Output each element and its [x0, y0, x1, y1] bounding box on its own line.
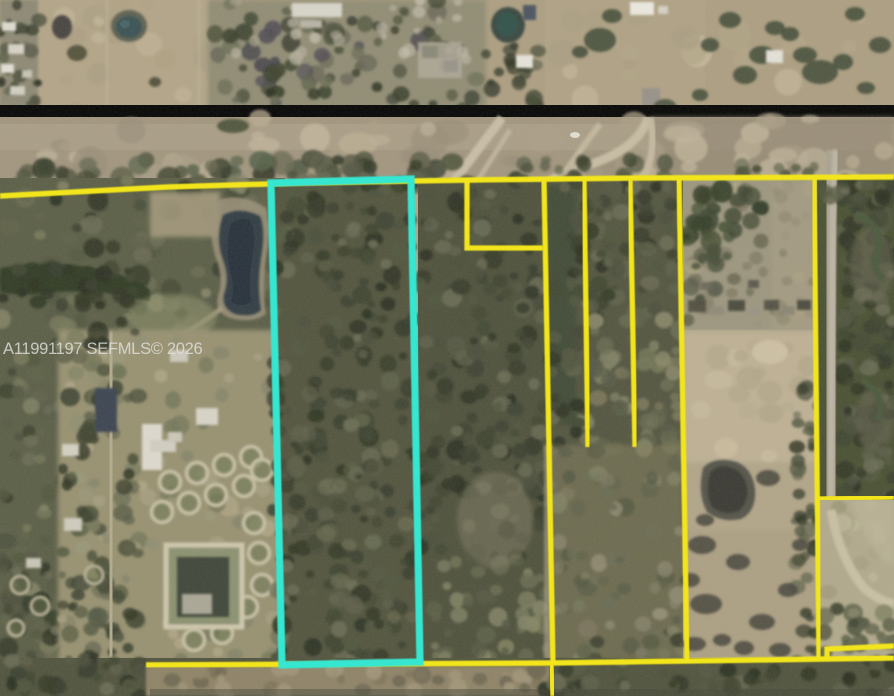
- svg-text:A11991197 SEFMLS© 2026: A11991197 SEFMLS© 2026: [3, 340, 203, 358]
